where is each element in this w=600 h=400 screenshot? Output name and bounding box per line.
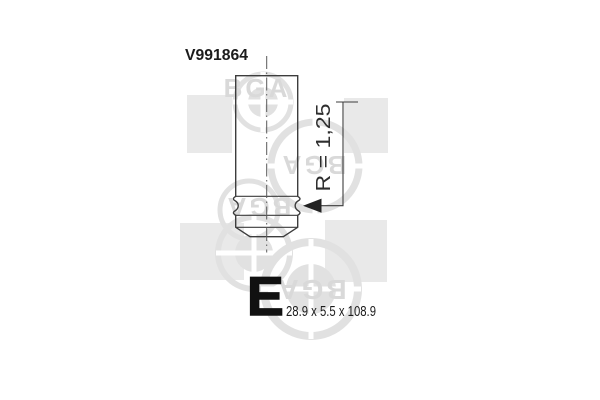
valve-type-letter: E [247,265,284,327]
bga-watermark: BGA BGA BGA BGA [180,72,388,339]
bga-watermark-text: BGA [224,73,291,103]
part-number-label: V991864 [185,47,248,64]
bga-watermark-text: BGA [275,274,346,305]
radius-dimension-label: R = 1,25 [313,104,335,192]
valve-dimensions-label: 28.9 x 5.5 x 108.9 [286,304,376,320]
valve-technical-drawing: BGA BGA BGA BGA R = 1,25 V991864 E 28.9 … [0,0,600,400]
bga-watermark-square [187,95,232,153]
valve-drawing-page: BGA BGA BGA BGA R = 1,25 V991864 E 28.9 … [0,0,600,400]
